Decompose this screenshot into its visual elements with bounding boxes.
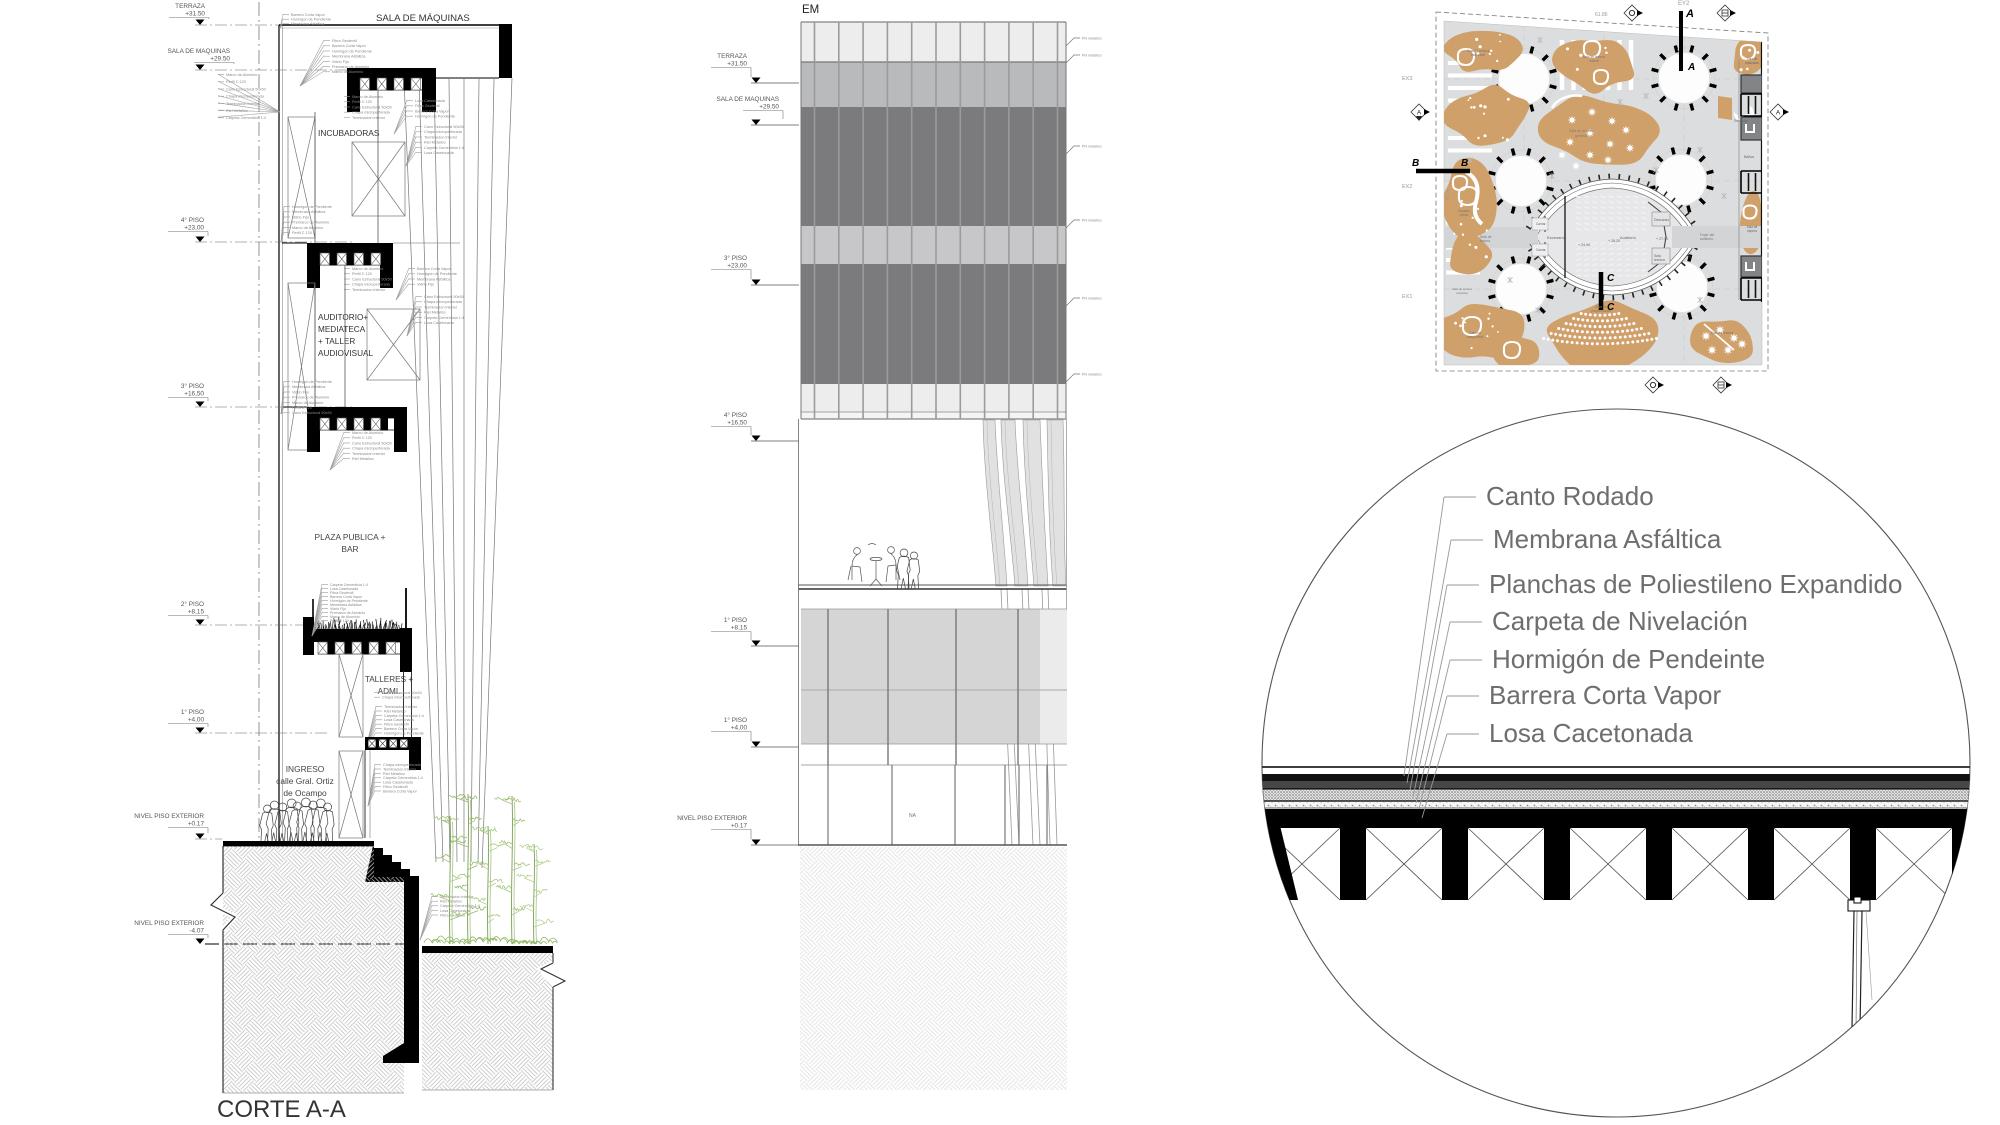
svg-text:Carpeta de Nivelación: Carpeta de Nivelación [1492, 606, 1748, 636]
svg-text:Losa Casetonada: Losa Casetonada [424, 151, 455, 155]
svg-text:A: A [1687, 62, 1695, 73]
svg-text:Cano Estructural 50x50: Cano Estructural 50x50 [352, 441, 392, 445]
svg-text:Vidrio Fijo: Vidrio Fijo [417, 283, 434, 287]
svg-text:Chapa microperforada: Chapa microperforada [424, 300, 463, 304]
svg-text:Pnl metalico: Pnl metalico [1082, 373, 1102, 377]
svg-text:Descanso: Descanso [1654, 218, 1669, 222]
svg-text:Chapa microperforada: Chapa microperforada [352, 447, 391, 451]
svg-text:2° PISO: 2° PISO [181, 600, 204, 608]
svg-text:Terminacion interior: Terminacion interior [352, 116, 386, 120]
svg-text:CORTE A-A: CORTE A-A [217, 1096, 346, 1123]
svg-text:Riel Metalico: Riel Metalico [383, 772, 405, 776]
svg-text:Membrana Asfaltica: Membrana Asfaltica [292, 385, 326, 389]
svg-text:Sala de lectura: Sala de lectura [1711, 331, 1734, 335]
svg-text:Cano Estructural 50x50: Cano Estructural 50x50 [424, 295, 464, 299]
svg-text:Marco de Aluminio: Marco de Aluminio [226, 73, 257, 77]
svg-text:Hormigon de Pendiente: Hormigon de Pendiente [292, 380, 332, 384]
svg-text:Auditorio: Auditorio [1620, 235, 1637, 240]
svg-text:PLAZA PUBLICA +: PLAZA PUBLICA + [315, 532, 386, 542]
svg-text:de Ocampo: de Ocampo [283, 788, 327, 798]
svg-text:Vidrio Fijo: Vidrio Fijo [292, 390, 309, 394]
svg-text:Premarco de Aluminio: Premarco de Aluminio [332, 65, 369, 69]
svg-text:Escenario: Escenario [1547, 235, 1566, 240]
svg-text:Perfil C 120: Perfil C 120 [352, 436, 372, 440]
svg-text:+8,15: +8,15 [731, 625, 748, 632]
svg-text:81.90: 81.90 [1445, 188, 1450, 200]
svg-text:Losa Casetonada: Losa Casetonada [415, 99, 446, 103]
svg-text:Marco de Aluminio: Marco de Aluminio [332, 70, 363, 74]
svg-text:calle Gral. Ortiz: calle Gral. Ortiz [276, 776, 334, 786]
svg-text:3° PISO: 3° PISO [181, 382, 204, 390]
svg-text:A: A [1776, 110, 1781, 117]
svg-text:+4,00: +4,00 [188, 717, 205, 724]
svg-text:NA: NA [909, 813, 917, 819]
svg-text:Membrana Asfaltica: Membrana Asfaltica [417, 277, 451, 281]
svg-text:EY2: EY2 [1678, 1, 1690, 7]
svg-text:Carpeta Cementicia 1:4: Carpeta Cementicia 1:4 [424, 146, 464, 150]
svg-text:AUDITORIO+: AUDITORIO+ [318, 313, 368, 322]
svg-text:+29.50: +29.50 [210, 56, 230, 63]
svg-text:Pnl metalico: Pnl metalico [1082, 297, 1102, 301]
svg-text:AUDIOVISUAL: AUDIOVISUAL [318, 349, 374, 358]
svg-text:TERRAZA: TERRAZA [175, 3, 206, 10]
svg-text:Cano Estructural 50x50: Cano Estructural 50x50 [382, 691, 422, 695]
svg-text:tecnica: tecnica [1654, 258, 1665, 262]
svg-text:1° PISO: 1° PISO [724, 716, 747, 724]
svg-text:SALA DE MAQUINAS: SALA DE MAQUINAS [716, 96, 779, 103]
svg-text:Perfil C 120: Perfil C 120 [352, 100, 372, 104]
svg-text:Cano Estructural 50x50: Cano Estructural 50x50 [352, 277, 392, 281]
svg-text:EX2: EX2 [1402, 184, 1412, 190]
svg-text:+0.17: +0.17 [188, 821, 205, 828]
svg-text:Membrana Asfaltica: Membrana Asfaltica [291, 22, 325, 26]
svg-text:Riel Metalico: Riel Metalico [352, 457, 374, 461]
svg-text:Losa Casetonada: Losa Casetonada [383, 781, 414, 785]
svg-text:Perfil C 120: Perfil C 120 [292, 406, 312, 410]
svg-text:Losa Casetonada: Losa Casetonada [424, 321, 455, 325]
svg-text:Carpeta Cementicia 1:4: Carpeta Cementicia 1:4 [384, 714, 424, 718]
svg-text:TERRAZA: TERRAZA [717, 53, 748, 60]
svg-text:+4,00: +4,00 [731, 725, 748, 732]
svg-text:Losa Cacetonada: Losa Cacetonada [1489, 718, 1693, 748]
svg-text:NIVEL PISO EXTERIOR: NIVEL PISO EXTERIOR [134, 920, 204, 927]
svg-text:Pnl metalico: Pnl metalico [1082, 37, 1102, 41]
svg-text:Barrera Corta Vapor: Barrera Corta Vapor [417, 267, 452, 271]
svg-text:Terminacion interior: Terminacion interior [383, 767, 417, 771]
svg-text:Vidrio Fijo: Vidrio Fijo [292, 215, 309, 219]
svg-text:Hormigon de Pendiente: Hormigon de Pendiente [384, 731, 424, 735]
svg-text:Chapa microperforada: Chapa microperforada [424, 130, 463, 134]
svg-text:Membrana Asfaltica: Membrana Asfaltica [292, 210, 326, 214]
svg-text:Fibra Geotextil: Fibra Geotextil [415, 104, 440, 108]
svg-text:Canto Rodado: Canto Rodado [1486, 481, 1654, 511]
svg-text:Hormigon de Pendiente: Hormigon de Pendiente [332, 49, 372, 53]
svg-text:Riel Metalico: Riel Metalico [424, 141, 446, 145]
svg-text:mascotas: mascotas [1745, 61, 1759, 65]
svg-text:Barrera Corta Vapor: Barrera Corta Vapor [291, 13, 326, 17]
svg-text:Chapa microperforada: Chapa microperforada [226, 95, 265, 99]
svg-text:auditorio: auditorio [1700, 237, 1713, 241]
svg-text:proyecciones: proyecciones [1591, 309, 1611, 313]
svg-text:Hormigon de Pendiente: Hormigon de Pendiente [415, 115, 455, 119]
svg-text:Camar.: Camar. [1536, 248, 1547, 252]
svg-text:Losa Casetonada: Losa Casetonada [384, 718, 415, 722]
svg-text:Barrera Corta Vapor: Barrera Corta Vapor [383, 789, 418, 793]
svg-text:Barrera Corta Vapor: Barrera Corta Vapor [332, 44, 367, 48]
svg-text:Chapa microperforada: Chapa microperforada [383, 763, 422, 767]
svg-text:MEDIATECA: MEDIATECA [318, 325, 366, 334]
svg-text:A: A [1417, 110, 1422, 117]
svg-text:Pnl metalico: Pnl metalico [1082, 145, 1102, 149]
svg-text:Cano Estructural 50x50: Cano Estructural 50x50 [424, 125, 464, 129]
svg-text:+ TALLER: + TALLER [318, 337, 355, 346]
svg-text:Chapa microperforada: Chapa microperforada [352, 111, 391, 115]
svg-text:Riel Metalico: Riel Metalico [440, 900, 462, 904]
svg-text:colectiva: colectiva [1456, 291, 1468, 295]
svg-text:-4.07: -4.07 [189, 928, 204, 935]
svg-text:4° PISO: 4° PISO [181, 216, 204, 224]
svg-text:SALA DE MAQUINAS: SALA DE MAQUINAS [167, 48, 230, 55]
svg-text:Perfil C 120: Perfil C 120 [292, 231, 312, 235]
svg-text:Marco de Aluminio: Marco de Aluminio [352, 431, 383, 435]
svg-text:INCUBADORAS: INCUBADORAS [318, 128, 380, 138]
svg-text:Sala de lectura: Sala de lectura [1569, 129, 1593, 133]
svg-text:Barrera Corta Vapor: Barrera Corta Vapor [1489, 680, 1722, 710]
svg-text:Premarco de Aluminio: Premarco de Aluminio [292, 396, 329, 400]
svg-text:Perfil C 120: Perfil C 120 [352, 272, 372, 276]
svg-text:+16,50: +16,50 [184, 391, 204, 398]
svg-text:C: C [1607, 273, 1615, 284]
svg-text:Marco de Aluminio: Marco de Aluminio [292, 226, 323, 230]
svg-text:Terminacion interior: Terminacion interior [424, 135, 458, 139]
svg-text:NIVEL PISO EXTERIOR: NIVEL PISO EXTERIOR [134, 813, 204, 820]
svg-text:Perfil C 120: Perfil C 120 [330, 619, 349, 623]
svg-text:Losa Casetonada: Losa Casetonada [440, 909, 471, 913]
svg-text:basquetbol: basquetbol [1467, 335, 1484, 339]
svg-text:Vidrio Fijo: Vidrio Fijo [332, 60, 349, 64]
svg-text:EX1: EX1 [1402, 294, 1412, 300]
svg-text:Chapa microperforada: Chapa microperforada [352, 283, 391, 287]
svg-text:Membrana Asfaltica: Membrana Asfaltica [332, 55, 366, 59]
svg-text:+ 27.90: + 27.90 [1656, 237, 1668, 241]
svg-text:Baños: Baños [1744, 155, 1754, 159]
svg-text:+8,15: +8,15 [188, 609, 205, 616]
svg-text:Premarco de Aluminio: Premarco de Aluminio [292, 221, 329, 225]
svg-text:infantil: infantil [1589, 59, 1599, 63]
svg-text:+ 24.90: + 24.90 [1578, 243, 1590, 247]
svg-text:+23,00: +23,00 [727, 263, 747, 270]
svg-text:+0.17: +0.17 [731, 823, 748, 830]
svg-text:Fibra Geotextil: Fibra Geotextil [332, 39, 357, 43]
svg-text:Recibidor: Recibidor [1734, 119, 1748, 123]
svg-text:SALA DE MÁQUINAS: SALA DE MÁQUINAS [376, 13, 470, 24]
svg-text:Barrera Corta Vapor: Barrera Corta Vapor [384, 727, 419, 731]
svg-text:61.86: 61.86 [1595, 12, 1608, 18]
svg-text:individual: individual [1471, 53, 1485, 57]
svg-text:Terminacion interior: Terminacion interior [424, 305, 458, 309]
svg-text:Pnl metalico: Pnl metalico [1082, 54, 1102, 58]
svg-text:Riel Metalico: Riel Metalico [384, 709, 406, 713]
svg-text:TALLERES +: TALLERES + [365, 675, 414, 684]
svg-text:4° PISO: 4° PISO [724, 411, 747, 419]
svg-text:+31.50: +31.50 [185, 11, 205, 18]
svg-text:Marco de Aluminio: Marco de Aluminio [352, 267, 383, 271]
svg-text:Membrana Asfáltica: Membrana Asfáltica [1493, 524, 1722, 554]
svg-text:Terminacion interior: Terminacion interior [352, 452, 386, 456]
svg-text:BAR: BAR [341, 544, 358, 554]
svg-text:general: general [1575, 134, 1587, 138]
svg-text:B: B [1461, 158, 1468, 169]
svg-text:+29.50: +29.50 [759, 104, 779, 111]
svg-text:Chapa microperforada: Chapa microperforada [382, 696, 421, 700]
svg-text:Terminacion interior: Terminacion interior [352, 288, 386, 292]
svg-text:B: B [1412, 158, 1419, 169]
svg-text:+31.50: +31.50 [727, 61, 747, 68]
svg-text:+23,00: +23,00 [184, 225, 204, 232]
svg-text:Hormigón de Pendeinte: Hormigón de Pendeinte [1492, 644, 1765, 674]
svg-text:Marco de Aluminio: Marco de Aluminio [352, 95, 383, 99]
svg-text:Hormigon de Pendiente: Hormigon de Pendiente [292, 205, 332, 209]
svg-text:3° PISO: 3° PISO [724, 254, 747, 262]
svg-text:espera: espera [1747, 229, 1757, 233]
svg-text:Riel Metalico: Riel Metalico [424, 311, 446, 315]
svg-text:Camar.: Camar. [1536, 222, 1547, 226]
svg-text:Planchas de Poliestileno Expan: Planchas de Poliestileno Expandido [1489, 569, 1902, 599]
svg-text:EM: EM [802, 4, 819, 16]
svg-text:Carpeta Cementicia 1:4: Carpeta Cementicia 1:4 [424, 316, 464, 320]
svg-text:Cano Estructural 50x50: Cano Estructural 50x50 [292, 411, 332, 415]
svg-text:A: A [1685, 8, 1694, 20]
svg-text:Marco de Aluminio: Marco de Aluminio [292, 401, 323, 405]
svg-text:NIVEL PISO EXTERIOR: NIVEL PISO EXTERIOR [677, 815, 747, 822]
svg-text:EX3: EX3 [1402, 76, 1412, 82]
svg-text:Cano Estructural 50x50: Cano Estructural 50x50 [352, 105, 392, 109]
svg-text:Hormigon de Pendiente: Hormigon de Pendiente [417, 272, 457, 276]
svg-text:INGRESO: INGRESO [286, 764, 325, 774]
svg-text:1° PISO: 1° PISO [724, 616, 747, 624]
svg-text:verde: verde [1460, 213, 1469, 217]
svg-text:Hormigon de Pendiente: Hormigon de Pendiente [291, 18, 331, 22]
svg-text:Carpeta Cementicia 1:4: Carpeta Cementicia 1:4 [226, 116, 266, 120]
svg-text:Carpeta Cementicia 1:4: Carpeta Cementicia 1:4 [383, 776, 423, 780]
svg-text:Fibra Geotextil: Fibra Geotextil [383, 785, 408, 789]
svg-text:Terminacion interior: Terminacion interior [384, 705, 418, 709]
svg-text:Fibra Geotextil: Fibra Geotextil [384, 723, 409, 727]
svg-text:lectura: lectura [1480, 239, 1490, 243]
svg-text:+16,50: +16,50 [727, 420, 747, 427]
svg-text:Barrera Corta Vapor: Barrera Corta Vapor [415, 109, 450, 113]
svg-text:Pnl metalico: Pnl metalico [1082, 219, 1102, 223]
svg-text:1° PISO: 1° PISO [181, 708, 204, 716]
svg-text:+ 26.20: + 26.20 [1608, 239, 1620, 243]
